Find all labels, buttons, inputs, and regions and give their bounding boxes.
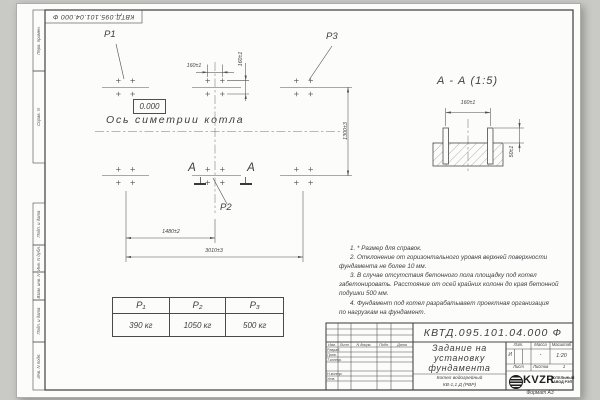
titleblock-scale-label: Масштаб	[550, 343, 573, 348]
note-line: подушки 500 мм.	[339, 289, 569, 298]
section-dim-160: 160±1	[446, 101, 490, 107]
titleblock-list-label: Лист	[506, 365, 531, 370]
margin-label-inv-podl: Инв. N подл.	[33, 342, 45, 390]
format-note: Формат А3	[518, 391, 562, 397]
titleblock-title-line3: фундамента	[413, 364, 506, 374]
titleblock-product-line2: КВ-1,1 Д (РВР)	[413, 383, 506, 388]
titleblock-row-razrab: Разраб.	[327, 348, 340, 352]
titleblock-scale-value: 1:20	[550, 353, 573, 359]
dim-1300: 1300±3	[344, 113, 353, 149]
dim-3010: 3010±3	[184, 249, 244, 255]
load-table-value: 390 кг	[113, 314, 170, 336]
titleblock-lit-value: И	[506, 353, 514, 359]
margin-label-inv-dubl: Инв. N дубл.	[33, 245, 45, 272]
section-letter-left: А	[185, 162, 199, 175]
drawing-canvas: КВТД.095.101.04.000 Ф Перв. примен. Спра…	[0, 0, 600, 400]
margin-label-vzam-inv: Взам. инв. N	[33, 272, 45, 300]
section-dim-50: 50±1	[510, 143, 518, 160]
load-table: P₁ P₂ P₃ 390 кг 1050 кг 500 кг	[112, 297, 284, 337]
titleblock-col-podp: Подп.	[377, 343, 391, 347]
load-table-header: P₃	[226, 298, 283, 314]
load-label-p3: P3	[326, 32, 338, 42]
section-letter-right: А	[244, 162, 258, 175]
titleblock-mass-label: Масса	[531, 343, 550, 348]
load-label-p1: P1	[104, 30, 116, 40]
note-line: фундамента не более 10 мм.	[339, 262, 569, 271]
note-line: забетонировать. Расстояние от осей крайн…	[339, 280, 569, 289]
load-table-value: 500 кг	[226, 314, 283, 336]
margin-label-podp-data-1: Подп. и дата	[33, 203, 45, 245]
notes-block: 1. * Размер для справок. 2. Отклонение о…	[339, 244, 569, 317]
titleblock-row-nkontr: Н.контр.	[327, 372, 343, 376]
dim-1480: 1480±2	[141, 230, 201, 236]
load-label-p2: P2	[220, 203, 232, 213]
load-table-header: P₂	[170, 298, 227, 314]
corner-designation: КВТД.095.101.04.000 Ф	[45, 10, 142, 23]
titleblock-listov-label: Листов	[533, 365, 548, 370]
note-line: 2. Отклонение от горизонтального уровня …	[339, 253, 569, 262]
load-table-value: 1050 кг	[170, 314, 227, 336]
titleblock-mass-value: -	[531, 353, 550, 359]
titleblock-col-data: Дата	[391, 343, 413, 347]
titleblock-row-prov: Пров.	[327, 353, 337, 357]
section-title: А - А (1:5)	[425, 75, 510, 87]
titleblock-lit-label: Лит.	[506, 343, 531, 348]
note-line: по нагрузкам на фундамент.	[339, 308, 569, 317]
margin-label-sprav-n: Справ. N	[33, 71, 45, 163]
titleblock-row-tkontr: Т.контр.	[327, 358, 342, 362]
titleblock-product-line1: Котел водогрейный	[413, 376, 506, 381]
kvzr-logo-sub2: ЗАВОД РЭП	[551, 381, 572, 385]
elevation-mark: 0.000	[133, 99, 166, 114]
note-line: 3. В случае отсутствия бетонного пола пл…	[339, 271, 569, 280]
margin-label-podp-data-2: Подп. и дата	[33, 300, 45, 342]
dim-160-vertical: 160±1	[239, 45, 247, 73]
titleblock-listov-value: 1	[557, 365, 571, 370]
titleblock-designation: КВТД.095.101.04.000 Ф	[413, 325, 573, 342]
axis-of-symmetry-label: Ось симетрии котла	[106, 115, 244, 127]
kvzr-logo-text: KVZR	[523, 374, 555, 386]
titleblock-col-izm: Изм.	[326, 343, 338, 347]
note-line: 4. Фундамент под котел разрабатывает про…	[339, 299, 569, 308]
note-line: 1. * Размер для справок.	[339, 244, 569, 253]
titleblock-row-utv: Утв.	[327, 377, 335, 381]
titleblock-col-list: Лист	[338, 343, 351, 347]
margin-label-perv-primen: Перв. примен.	[33, 10, 45, 71]
titleblock-col-docum: N докум.	[351, 343, 377, 347]
load-table-header: P₁	[113, 298, 170, 314]
kvzr-logo-icon	[509, 375, 523, 389]
dim-160-horizontal: 160±1	[181, 64, 207, 70]
